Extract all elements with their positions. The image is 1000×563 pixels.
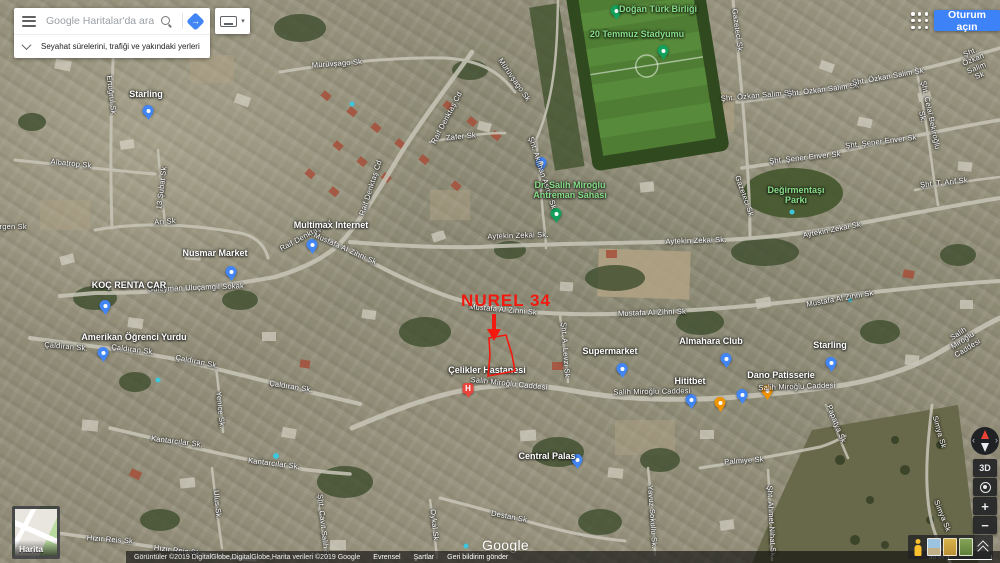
imagery-dock [908,535,993,559]
imagery-thumbnail[interactable] [943,538,957,556]
attribution-links: EvrenselŞartlarGeri bildirim gönder [373,554,508,561]
divider [182,13,183,29]
shopping-poi-pin[interactable] [617,363,628,374]
park-poi-pin[interactable] [658,45,669,56]
sign-in-button[interactable]: Oturum açın [934,10,1000,31]
map-mode-label: Harita [19,544,43,554]
default-poi-pin[interactable] [536,157,547,168]
pegman-icon[interactable] [911,538,925,557]
imagery-thumbnail[interactable] [959,538,973,556]
park-poi-pin[interactable] [611,5,622,16]
my-location-button[interactable] [973,478,997,496]
default-poi-pin[interactable] [721,353,732,364]
chevron-down-icon [22,40,32,50]
caret-down-icon: ▾ [241,17,245,25]
travel-times-row[interactable]: Seyahat sürelerini, trafiği ve yakındaki… [14,35,210,58]
shopping-poi-pin[interactable] [226,266,237,277]
default-poi-pin[interactable] [572,454,583,465]
zoom-out-button[interactable]: − [973,516,997,534]
attribution-bar: Görüntüler ©2019 DigitalGlobe,DigitalGlo… [126,551,1000,563]
attribution-link[interactable]: Evrensel [373,554,400,561]
travel-hint-label: Seyahat sürelerini, trafiği ve yakındaki… [41,42,201,51]
zoom-in-button[interactable]: + [973,497,997,515]
search-icon[interactable] [160,15,172,27]
attribution-link[interactable]: Şartlar [414,554,435,561]
park-poi-pin[interactable] [551,208,562,219]
satellite-map[interactable]: H Mürüvşago SkMürüvşago SkRaif Denktaş C… [0,0,1000,563]
map-mode-thumbnail[interactable]: Harita [12,506,60,559]
collapse-chevron-icon[interactable] [975,538,990,556]
default-poi-pin[interactable] [307,239,318,250]
google-maps-window: H Mürüvşago SkMürüvşago SkRaif Denktaş C… [0,0,1000,563]
default-poi-pin[interactable] [686,394,697,405]
default-poi-pin[interactable] [98,347,109,358]
directions-icon[interactable]: → [186,12,204,30]
attribution-link[interactable]: Geri bildirim gönder [447,554,508,561]
food-poi-pin[interactable] [762,385,773,396]
default-poi-pin[interactable] [826,357,837,368]
search-row: → [14,8,210,35]
3d-button[interactable]: 3D [973,459,997,477]
food-poi-pin[interactable] [715,397,726,408]
default-poi-pin[interactable] [100,300,111,311]
search-card: → Seyahat sürelerini, trafiği ve yakında… [14,8,210,58]
input-tools-button[interactable]: ▾ [215,8,250,34]
map-pins-layer: H [0,0,1000,563]
default-poi-pin[interactable] [143,105,154,116]
menu-icon[interactable] [22,16,36,27]
imagery-thumbnail[interactable] [927,538,941,556]
google-apps-icon[interactable] [911,12,929,30]
search-input[interactable] [44,14,156,28]
imagery-credits: Görüntüler ©2019 DigitalGlobe,DigitalGlo… [134,554,360,561]
keyboard-icon [220,16,237,27]
shopping-poi-pin[interactable] [737,389,748,400]
hospital-poi-pin[interactable]: H [463,383,474,394]
